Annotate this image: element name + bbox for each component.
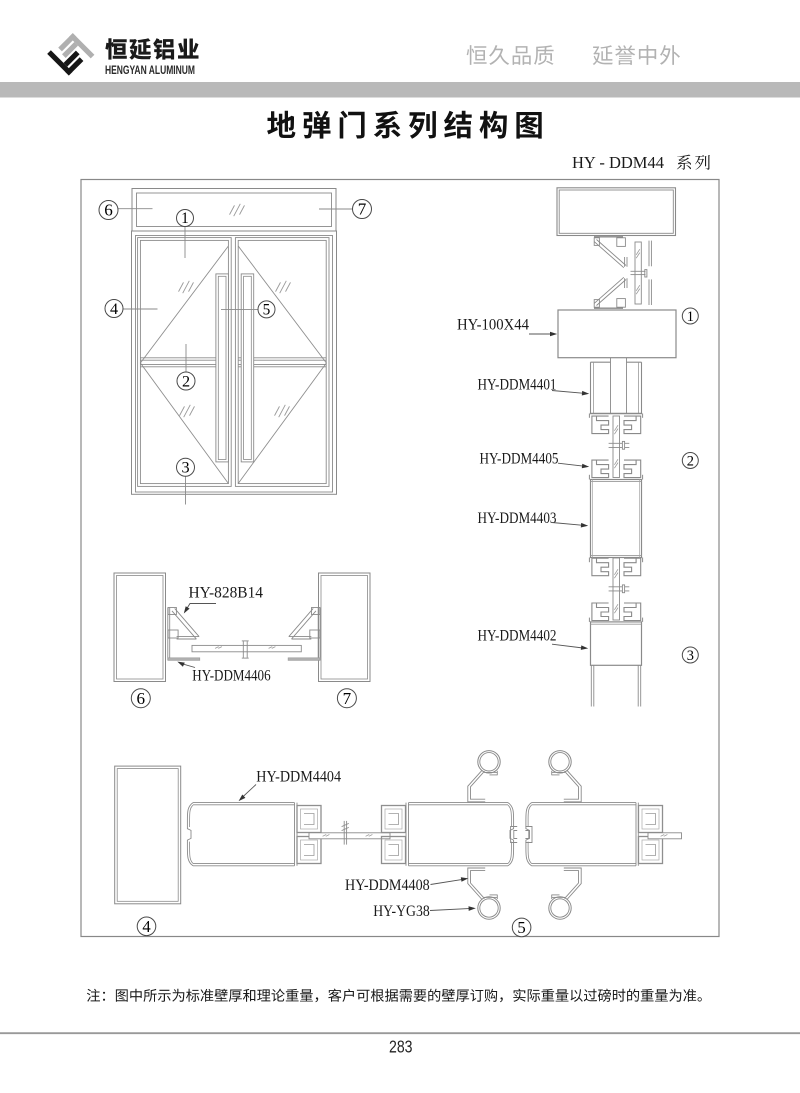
svg-text:7: 7 (358, 200, 367, 219)
svg-text:2: 2 (687, 453, 694, 469)
svg-text:HY-828B14: HY-828B14 (189, 585, 264, 602)
svg-text:5: 5 (263, 301, 271, 318)
svg-text:7: 7 (343, 689, 352, 708)
svg-text:3: 3 (181, 459, 189, 477)
svg-text:HY-DDM4408: HY-DDM4408 (345, 877, 430, 894)
svg-text:HY-DDM4401: HY-DDM4401 (478, 377, 557, 394)
svg-text:HY-DDM4402: HY-DDM4402 (478, 628, 557, 645)
svg-text:HY-DDM4405: HY-DDM4405 (480, 451, 559, 468)
svg-text:6: 6 (137, 689, 146, 708)
svg-text:5: 5 (517, 918, 525, 937)
svg-text:1: 1 (687, 309, 694, 325)
svg-text:1: 1 (181, 210, 189, 227)
svg-text:HENGYAN ALUMINUM: HENGYAN ALUMINUM (105, 65, 195, 77)
svg-text:6: 6 (104, 201, 113, 220)
svg-text:3: 3 (687, 648, 694, 664)
svg-text:4: 4 (110, 300, 118, 318)
svg-text:HY-DDM4406: HY-DDM4406 (192, 668, 271, 685)
svg-text:283: 283 (389, 1037, 413, 1057)
svg-text:HY - DDM44: HY - DDM44 (572, 153, 664, 172)
svg-text:HY-DDM4404: HY-DDM4404 (256, 769, 341, 786)
svg-text:HY-100X44: HY-100X44 (457, 317, 529, 334)
svg-text:4: 4 (142, 917, 151, 936)
svg-text:2: 2 (182, 372, 190, 390)
svg-text:HY-YG38: HY-YG38 (373, 903, 430, 920)
svg-text:HY-DDM4403: HY-DDM4403 (478, 510, 557, 527)
